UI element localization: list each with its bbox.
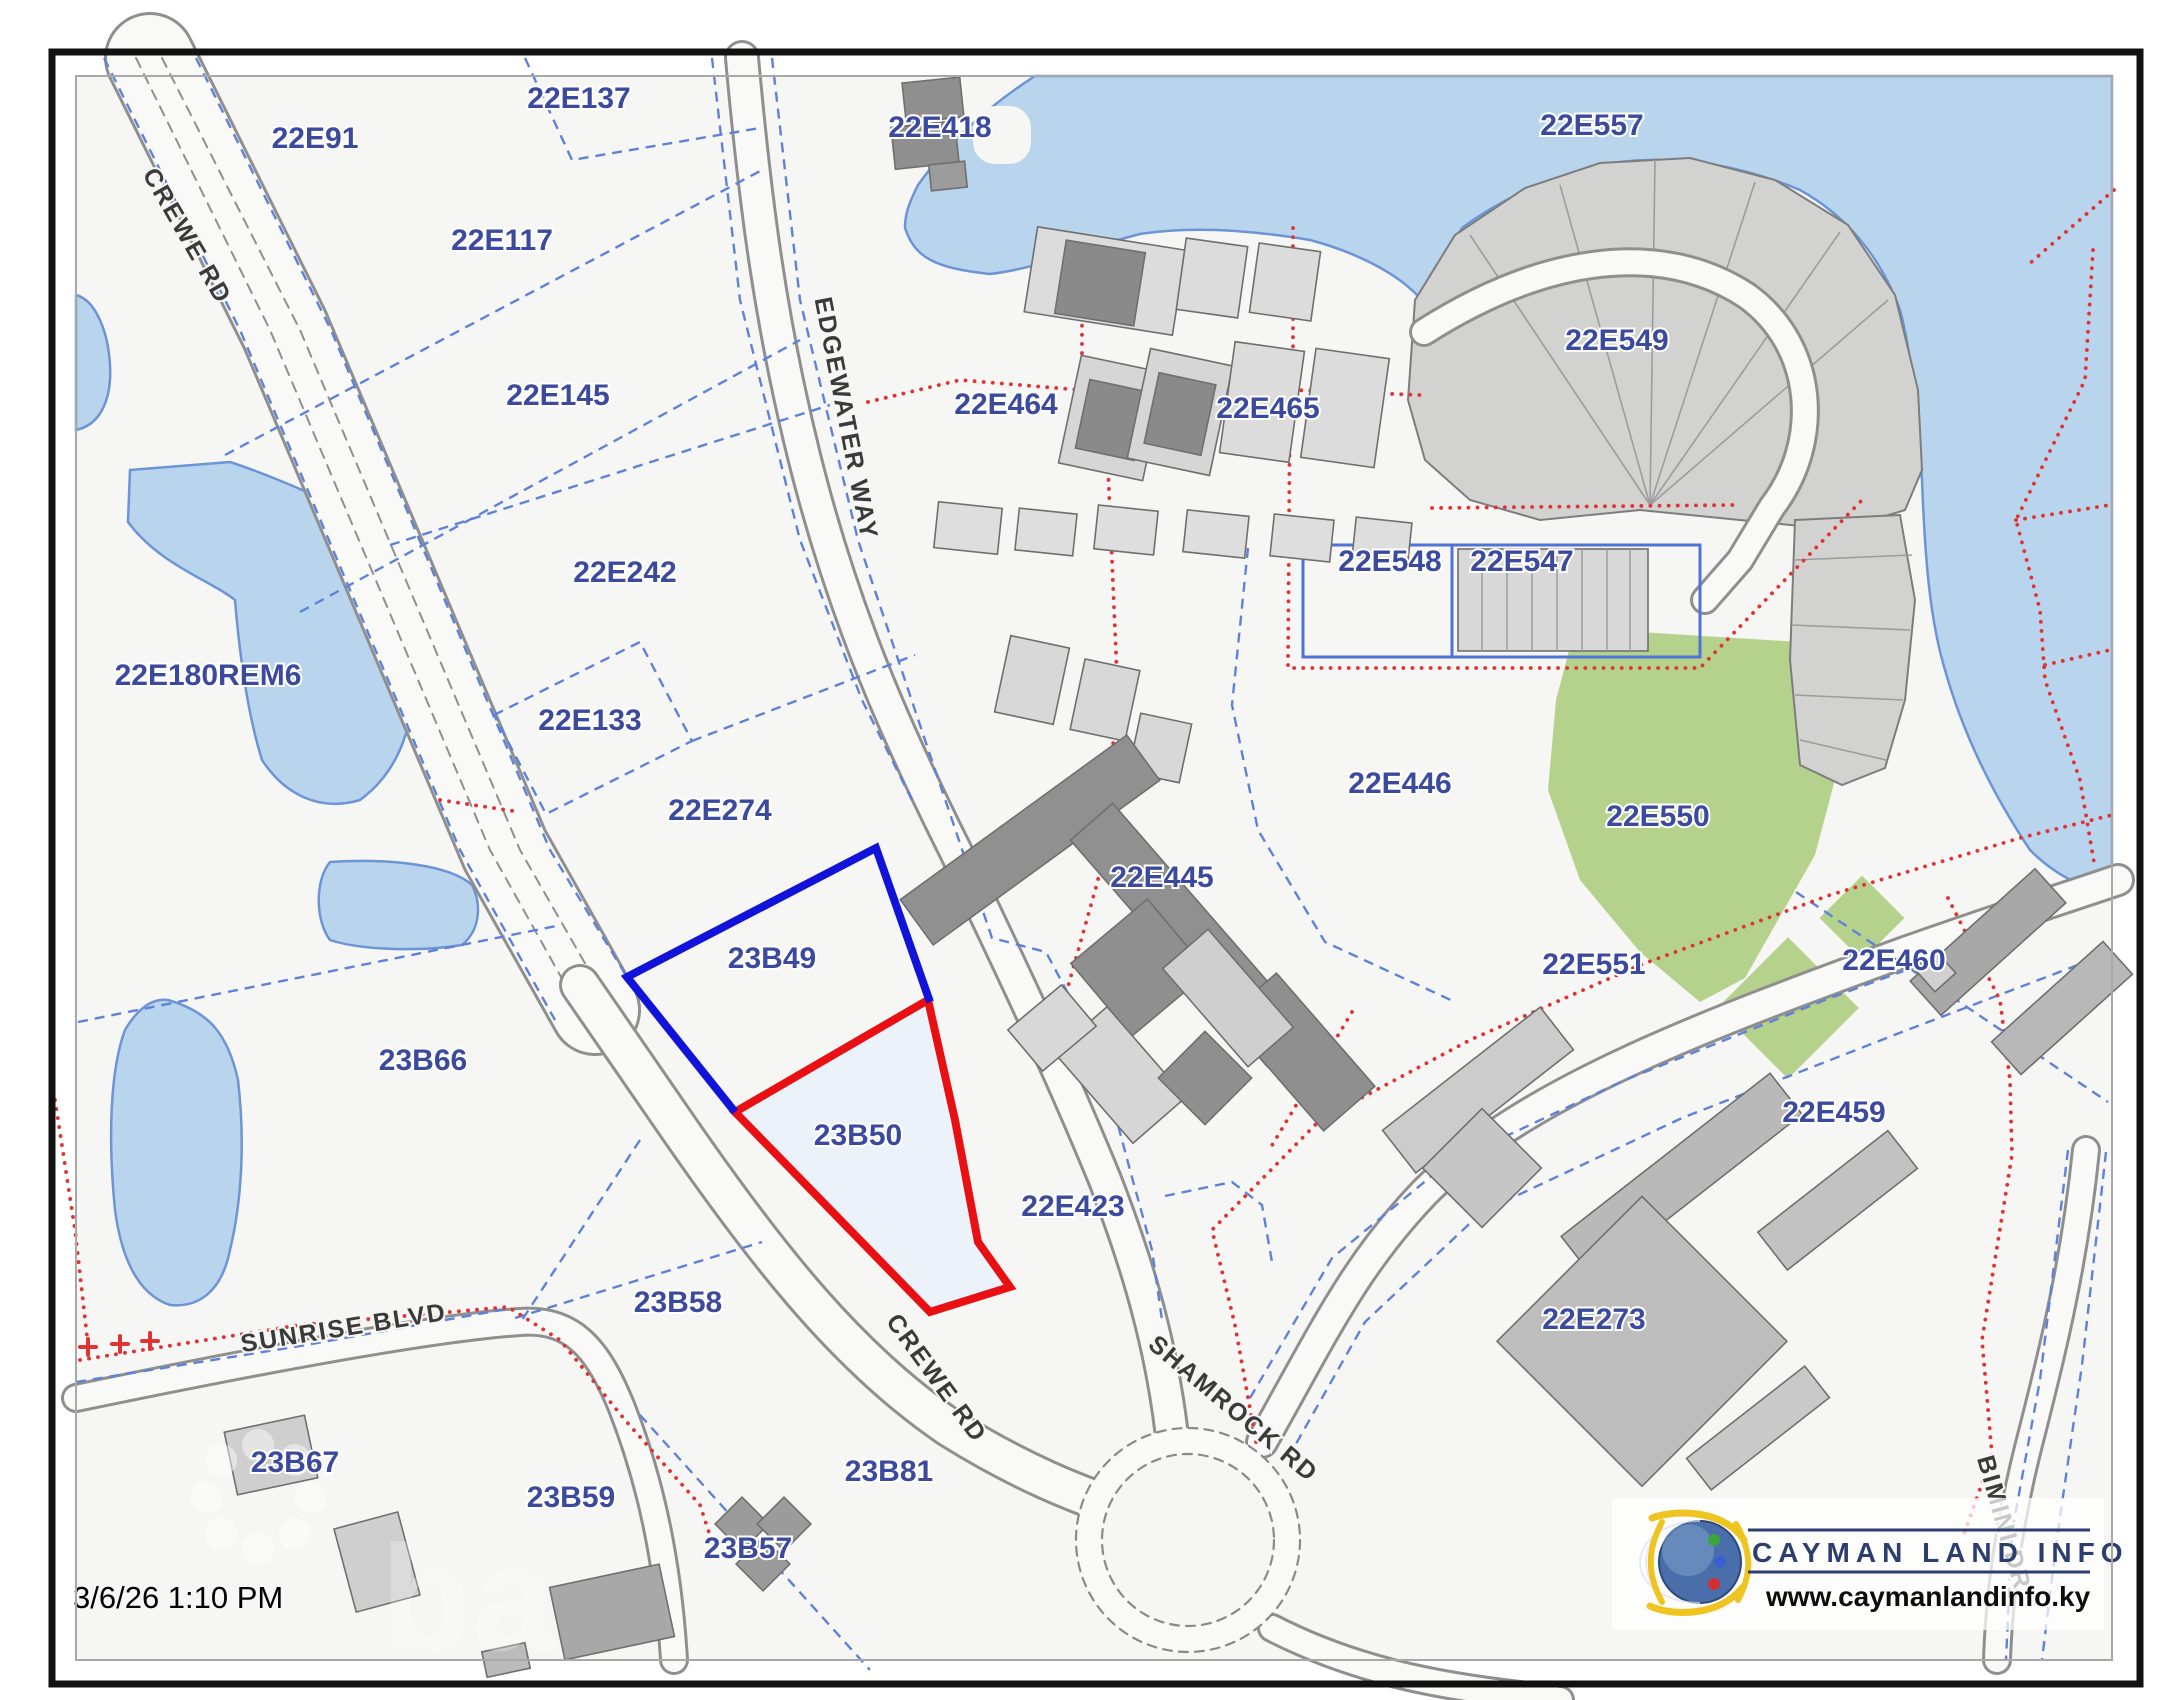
parcel-label-23b67: 23B67 xyxy=(251,1446,339,1479)
parcel-label-22e180rem6: 22E180REM6 xyxy=(115,659,302,692)
parcel-label-22e137: 22E137 xyxy=(527,82,630,115)
parcel-label-22e91: 22E91 xyxy=(272,122,359,155)
brand-url: www.caymanlandinfo.ky xyxy=(1765,1581,2091,1612)
parcel-label-22e418: 22E418 xyxy=(888,111,991,144)
parcel-label-23b58: 23B58 xyxy=(634,1286,722,1319)
parcel-label-22e242: 22E242 xyxy=(573,556,676,589)
parcel-label-23b66: 23B66 xyxy=(379,1044,467,1077)
parcel-label-22e273: 22E273 xyxy=(1542,1303,1645,1336)
pond-4 xyxy=(111,1000,242,1306)
parcel-label-23b57: 23B57 xyxy=(704,1532,792,1565)
parcel-label-22e549: 22E549 xyxy=(1565,324,1668,357)
parcel-label-22e464: 22E464 xyxy=(954,388,1058,421)
parcel-label-22e445: 22E445 xyxy=(1110,861,1213,894)
parcel-label-22e117: 22E117 xyxy=(451,224,553,257)
parcel-label-22e459: 22E459 xyxy=(1782,1096,1885,1129)
brand-name: CAYMAN LAND INFO xyxy=(1752,1537,2129,1568)
svg-text:ba: ba xyxy=(380,1514,557,1682)
parcel-label-22e547: 22E547 xyxy=(1470,545,1573,578)
parcel-label-23b81: 23B81 xyxy=(845,1455,933,1488)
cadastral-map[interactable]: ba 22E9122E13722E11722E14522E24222E13322… xyxy=(0,0,2168,1700)
map-content: ba 22E9122E13722E11722E14522E24222E13322… xyxy=(55,58,2132,1700)
parcel-label-22e557: 22E557 xyxy=(1540,109,1643,142)
roundabout-island xyxy=(1102,1454,1274,1626)
parcel-label-22e465: 22E465 xyxy=(1216,392,1319,425)
timestamp: 3/6/26 1:10 PM xyxy=(73,1580,283,1615)
pond-3 xyxy=(319,861,478,949)
parcel-label-22e548: 22E548 xyxy=(1338,545,1441,578)
parcel-label-23b50: 23B50 xyxy=(814,1119,902,1152)
parcel-label-23b49: 23B49 xyxy=(728,942,816,975)
parcel-label-22e423: 22E423 xyxy=(1021,1190,1124,1223)
parcel-label-22e133: 22E133 xyxy=(538,704,641,737)
parcel-label-22e145: 22E145 xyxy=(506,379,609,412)
parcel-label-22e551: 22E551 xyxy=(1542,948,1645,981)
parcel-label-22e274: 22E274 xyxy=(668,794,772,827)
parcel-label-22e460: 22E460 xyxy=(1842,944,1945,977)
parcel-label-23b59: 23B59 xyxy=(527,1481,615,1514)
parcel-label-22e446: 22E446 xyxy=(1348,767,1451,800)
brand-logo: CAYMAN LAND INFO www.caymanlandinfo.ky xyxy=(1612,1498,2129,1630)
parcel-label-22e550: 22E550 xyxy=(1606,800,1709,833)
map-viewport[interactable]: ba 22E9122E13722E11722E14522E24222E13322… xyxy=(0,0,2168,1700)
